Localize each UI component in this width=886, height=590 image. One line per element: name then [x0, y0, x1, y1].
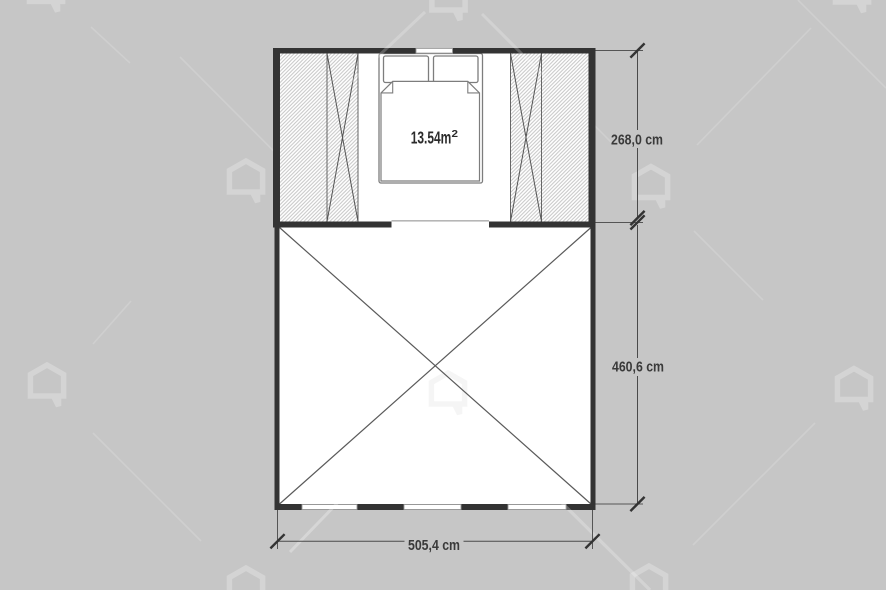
svg-text:268,0 cm: 268,0 cm: [611, 132, 663, 148]
svg-text:460,6 cm: 460,6 cm: [612, 360, 664, 376]
svg-text:2: 2: [452, 129, 459, 140]
svg-text:13.54m: 13.54m: [411, 127, 452, 147]
svg-text:505,4 cm: 505,4 cm: [408, 538, 460, 554]
